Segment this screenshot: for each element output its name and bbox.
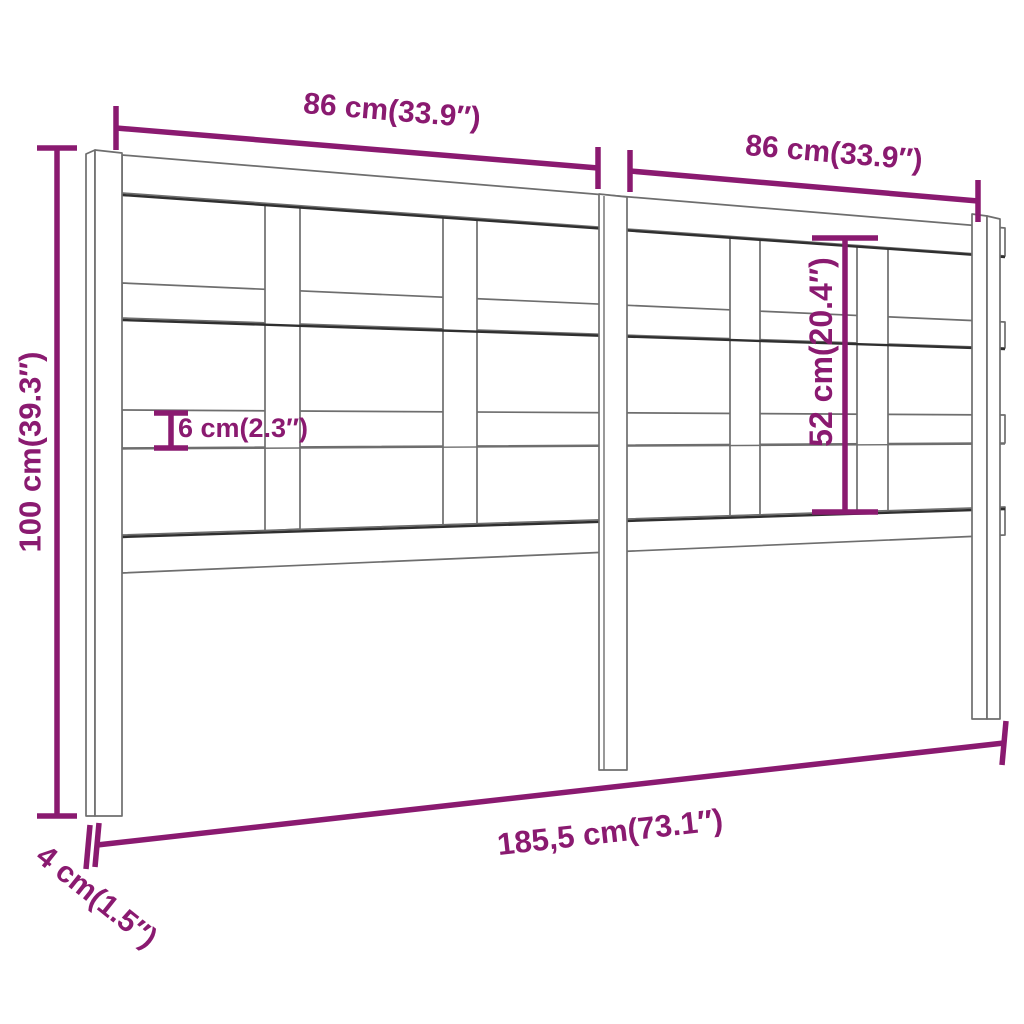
right-leg — [972, 214, 1000, 719]
center-leg — [599, 194, 627, 770]
dim-label-total-width: 185,5 cm(73.1″) — [495, 802, 724, 862]
dim-rail-thickness: 6 cm(2.3″) — [154, 413, 308, 448]
bottom-rail — [122, 507, 1005, 573]
dim-label-width-right: 86 cm(33.9″) — [744, 129, 924, 177]
dim-label-rail-thickness: 6 cm(2.3″) — [178, 413, 308, 443]
dim-height: 100 cm(39.3″) — [13, 148, 78, 816]
vertical-slat-4 — [857, 245, 888, 512]
dim-total-width: 185,5 cm(73.1″) — [86, 721, 1006, 869]
dim-label-height: 100 cm(39.3″) — [13, 352, 48, 553]
vertical-slat-2 — [443, 216, 477, 525]
product-diagram-canvas: 86 cm(33.9″) 86 cm(33.9″) 100 cm(39.3″) — [0, 0, 1024, 1024]
vertical-slat-3 — [730, 236, 760, 516]
dim-label-width-left: 86 cm(33.9″) — [302, 87, 482, 135]
vertical-slat-1 — [265, 203, 300, 531]
headboard-drawing — [86, 150, 1005, 816]
headboard-dimension-diagram: 86 cm(33.9″) 86 cm(33.9″) 100 cm(39.3″) — [0, 0, 1024, 1024]
left-leg — [86, 150, 122, 816]
dim-label-inner-height: 52 cm(20.4″) — [803, 257, 839, 447]
